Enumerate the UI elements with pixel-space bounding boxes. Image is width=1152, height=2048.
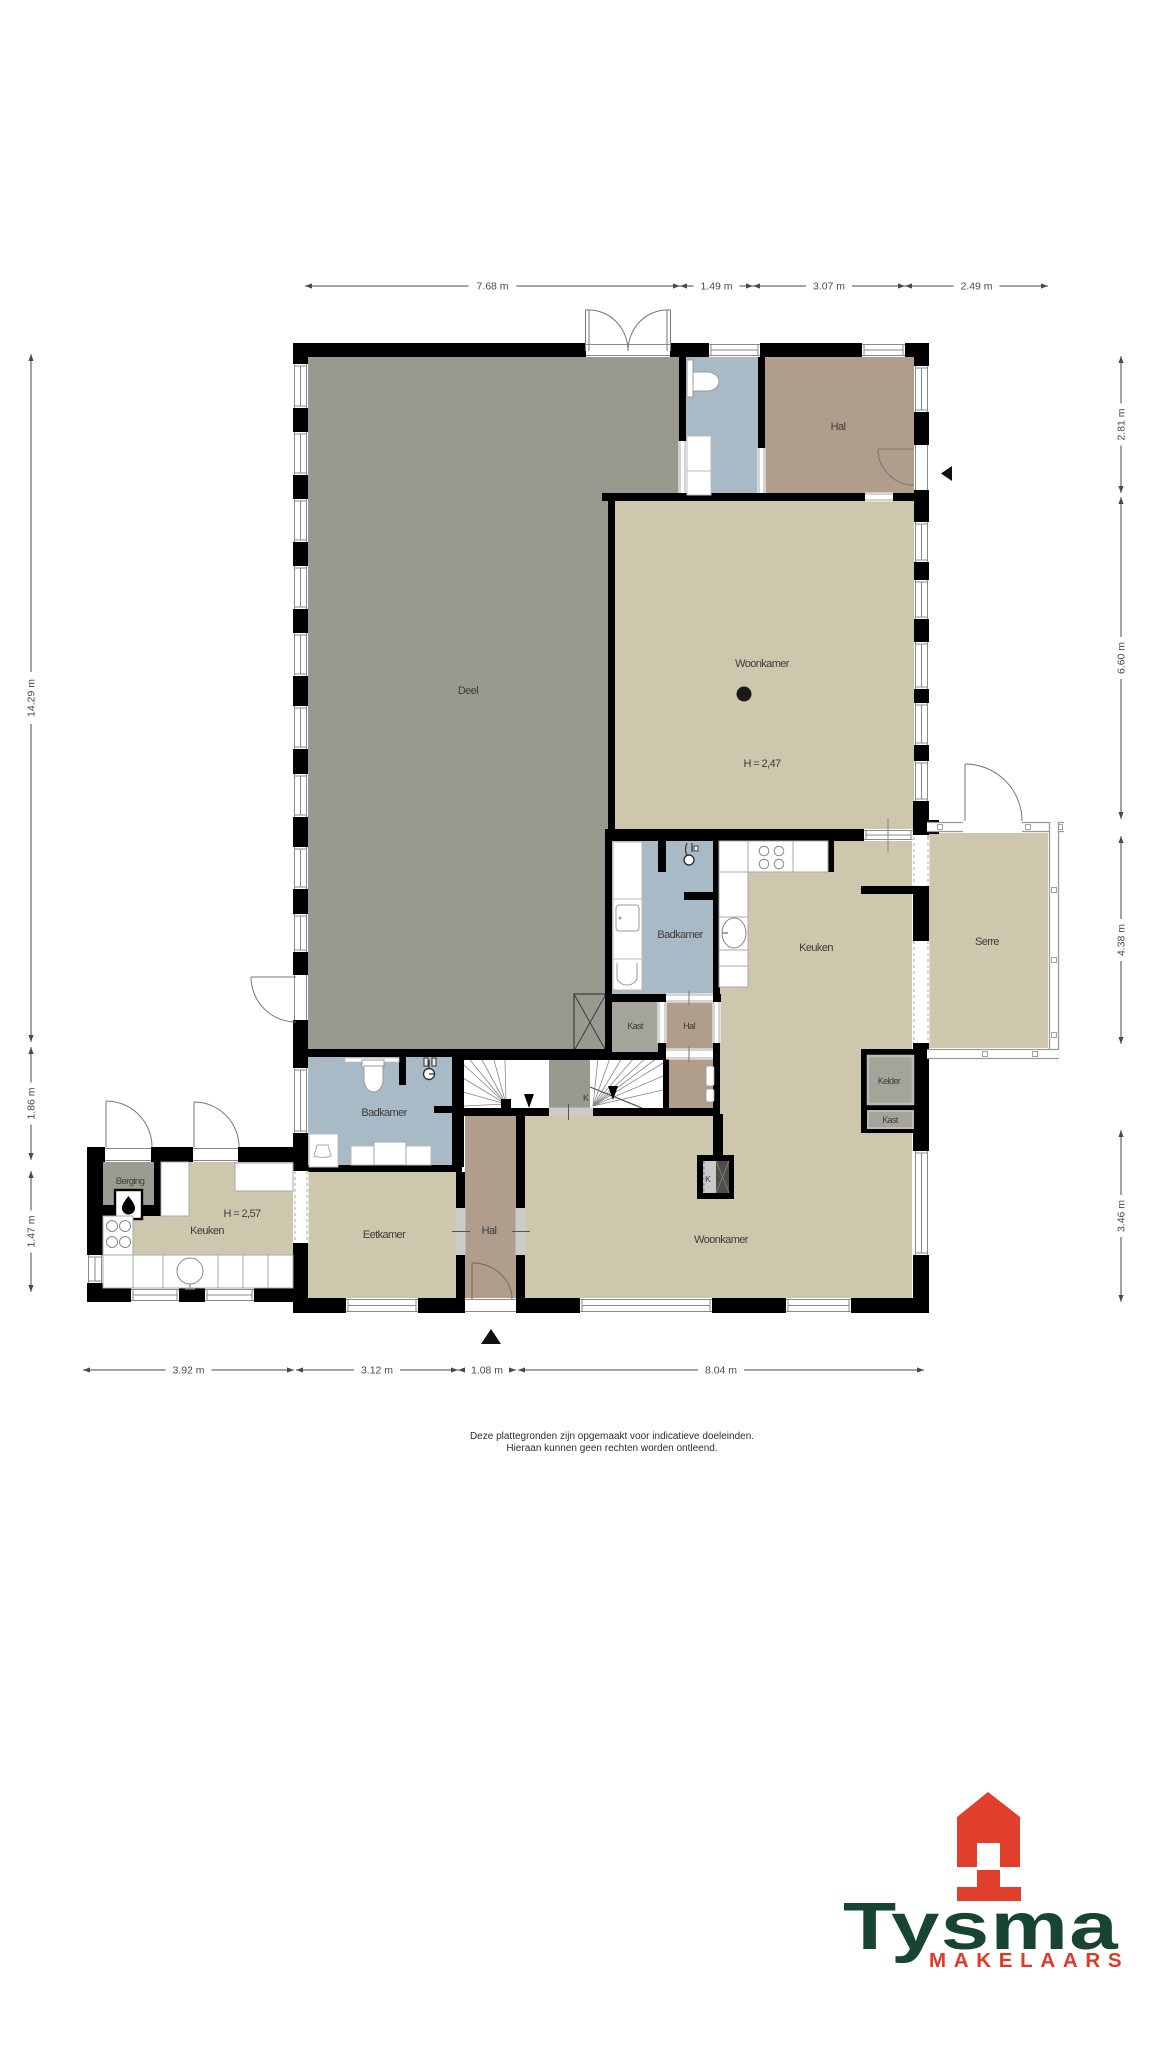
svg-text:H = 2,57: H = 2,57	[223, 1208, 261, 1220]
svg-text:Serre: Serre	[975, 936, 999, 948]
svg-text:Deze plattegronden zijn opgema: Deze plattegronden zijn opgemaakt voor i…	[470, 1431, 754, 1442]
svg-text:Badkamer: Badkamer	[657, 929, 703, 941]
svg-text:Hal: Hal	[831, 421, 846, 433]
svg-text:1.86 m: 1.86 m	[26, 1087, 38, 1119]
svg-text:Hal: Hal	[683, 1021, 695, 1031]
svg-text:1.47 m: 1.47 m	[26, 1215, 38, 1247]
svg-text:Kast: Kast	[627, 1021, 644, 1031]
svg-text:H = 2,47: H = 2,47	[743, 758, 781, 770]
svg-text:Badkamer: Badkamer	[361, 1107, 407, 1119]
svg-text:Woonkamer: Woonkamer	[735, 658, 790, 670]
svg-text:MAKELAARS: MAKELAARS	[929, 1949, 1129, 1972]
svg-text:14.29 m: 14.29 m	[26, 679, 38, 717]
svg-text:3.46 m: 3.46 m	[1116, 1200, 1128, 1232]
svg-text:2.81 m: 2.81 m	[1116, 408, 1128, 440]
svg-text:6.60 m: 6.60 m	[1116, 642, 1128, 674]
svg-text:1.49 m: 1.49 m	[700, 281, 732, 293]
svg-text:Keuken: Keuken	[799, 942, 833, 954]
svg-text:2.49 m: 2.49 m	[960, 281, 992, 293]
svg-text:3.07 m: 3.07 m	[813, 281, 845, 293]
svg-text:3.12 m: 3.12 m	[361, 1365, 393, 1377]
svg-text:Berging: Berging	[116, 1176, 145, 1187]
svg-text:Kast: Kast	[882, 1115, 899, 1125]
svg-text:K: K	[705, 1174, 711, 1184]
svg-text:Hieraan kunnen geen rechten wo: Hieraan kunnen geen rechten worden ontle…	[506, 1443, 717, 1454]
svg-text:Keuken: Keuken	[190, 1225, 224, 1237]
svg-text:Woonkamer: Woonkamer	[694, 1234, 749, 1246]
svg-text:4.38 m: 4.38 m	[1116, 924, 1128, 956]
svg-text:Hal: Hal	[482, 1225, 497, 1237]
svg-text:Kelder: Kelder	[878, 1076, 901, 1086]
svg-text:7.68 m: 7.68 m	[476, 281, 508, 293]
svg-text:8.04 m: 8.04 m	[705, 1365, 737, 1377]
svg-text:K: K	[583, 1093, 589, 1103]
svg-text:1.08 m: 1.08 m	[471, 1365, 503, 1377]
svg-text:3.92 m: 3.92 m	[172, 1365, 204, 1377]
svg-text:Deel: Deel	[458, 685, 478, 697]
svg-text:Eetkamer: Eetkamer	[363, 1229, 406, 1241]
